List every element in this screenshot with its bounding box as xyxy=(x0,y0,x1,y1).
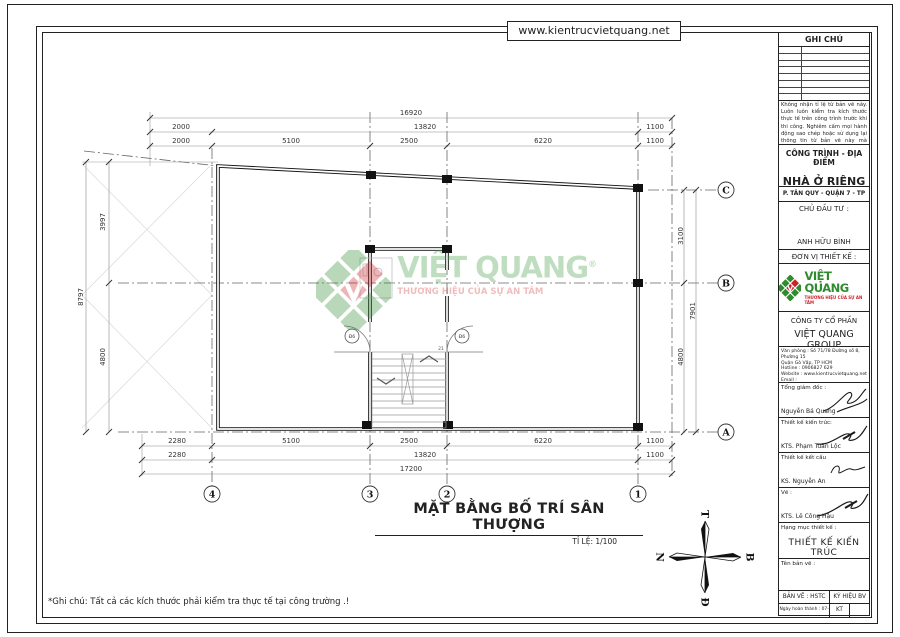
brand-tagline: THƯƠNG HIỆU CỦA SỰ AN TÂM xyxy=(804,295,869,305)
company-line2: VIỆT QUANG GROUP xyxy=(779,329,869,347)
svg-text:7901: 7901 xyxy=(689,302,697,320)
sheet-symbol-label: KÝ HIỆU BV xyxy=(830,591,869,603)
svg-text:N: N xyxy=(654,552,666,562)
category-section: Hạng mục thiết kế : THIẾT KẾ KIẾN TRÚC xyxy=(779,523,869,559)
drawing-sheet: www.kientrucvietquang.net xyxy=(0,0,900,637)
floor-plan-svg: 1692020001382011002000510025006220110022… xyxy=(40,30,780,630)
svg-text:Đ: Đ xyxy=(699,597,711,606)
svg-text:5100: 5100 xyxy=(282,137,300,145)
svg-text:4800: 4800 xyxy=(99,348,107,366)
svg-text:1100: 1100 xyxy=(646,123,664,131)
svg-text:3997: 3997 xyxy=(99,213,107,231)
sheet-type-row: BẢN VẼ : HSTC KÝ HIỆU BV xyxy=(779,591,869,604)
category-label: Hạng mục thiết kế : xyxy=(779,523,869,531)
svg-text:1100: 1100 xyxy=(646,137,664,145)
investor-label: CHỦ ĐẦU TƯ : xyxy=(779,202,869,213)
svg-text:1100: 1100 xyxy=(646,437,664,445)
svg-text:4: 4 xyxy=(209,490,216,501)
svg-text:T: T xyxy=(699,510,711,518)
vietquang-diamond-icon xyxy=(779,275,801,301)
walls xyxy=(218,166,638,429)
note-line: Không nhận tỉ lệ từ bản vẽ này. xyxy=(781,102,867,108)
investor-name: ANH HỮU BÌNH xyxy=(779,238,869,246)
signature-name: KS. Nguyễn An xyxy=(781,478,826,485)
signature-icon xyxy=(825,455,869,481)
sheet-name-section: Tên bản vẽ : xyxy=(779,559,869,591)
signature-director: Tổng giám đốc : Nguyễn Bá Quang xyxy=(779,383,869,418)
compass-icon xyxy=(669,521,741,593)
sheet-date-row: Ngày hoàn thành : 07-2024 KT xyxy=(779,604,869,617)
svg-text:5100: 5100 xyxy=(282,437,300,445)
svg-text:B: B xyxy=(722,279,730,290)
contact-line: Văn phòng : Số 71/78 Đường số 8, Phường … xyxy=(781,349,867,361)
investor-section: CHỦ ĐẦU TƯ : ANH HỮU BÌNH xyxy=(779,202,869,250)
project-name: NHÀ Ở RIÊNG LẺ xyxy=(779,175,869,187)
disclaimer-notes: Không nhận tỉ lệ từ bản vẽ này. Luôn luô… xyxy=(779,101,869,145)
project-label: CÔNG TRÌNH - ĐỊA ĐIỂM xyxy=(779,149,869,167)
signature-architect: Thiết kế kiến trúc: KTS. Phạm Tuấn Lộc xyxy=(779,418,869,453)
svg-text:C: C xyxy=(722,186,730,197)
svg-text:B: B xyxy=(744,553,756,562)
category-value: THIẾT KẾ KIẾN TRÚC xyxy=(779,538,869,558)
company-logo: VIỆT QUANG THƯƠNG HIỆU CỦA SỰ AN TÂM xyxy=(779,264,869,312)
svg-text:2500: 2500 xyxy=(400,137,418,145)
dimension-lines xyxy=(82,112,696,476)
project-section: CÔNG TRÌNH - ĐỊA ĐIỂM NHÀ Ở RIÊNG LẺ xyxy=(779,145,869,187)
staircase xyxy=(372,352,446,428)
svg-text:1: 1 xyxy=(635,490,642,501)
svg-text:2000: 2000 xyxy=(172,137,190,145)
notes-table xyxy=(779,47,869,101)
svg-text:2500: 2500 xyxy=(400,437,418,445)
project-address: P. TÂN QUY - QUẬN 7 - TP HCM xyxy=(779,187,869,202)
signature-engineer: Thiết kế kết cấu KS. Nguyễn An xyxy=(779,453,869,488)
landing-fixture xyxy=(360,258,392,298)
svg-text:2: 2 xyxy=(444,490,451,501)
company-name: CÔNG TY CỔ PHẦN VIỆT QUANG GROUP xyxy=(779,312,869,347)
notes-header: GHI CHÚ xyxy=(779,33,869,47)
completion-date: Ngày hoàn thành : 07-2024 xyxy=(779,604,830,617)
columns xyxy=(362,171,643,431)
svg-text:3: 3 xyxy=(367,490,374,501)
svg-text:8797: 8797 xyxy=(77,288,85,306)
svg-text:6220: 6220 xyxy=(534,437,552,445)
svg-text:Đ6: Đ6 xyxy=(349,334,356,340)
svg-text:3100: 3100 xyxy=(677,227,685,245)
svg-text:13820: 13820 xyxy=(414,123,436,131)
svg-text:Đ6: Đ6 xyxy=(459,334,466,340)
svg-text:A: A xyxy=(721,428,730,439)
svg-text:1100: 1100 xyxy=(646,451,664,459)
svg-text:17200: 17200 xyxy=(400,465,422,473)
company-line1: CÔNG TY CỔ PHẦN xyxy=(779,317,869,325)
sheet-type: BẢN VẼ : HSTC xyxy=(779,591,830,603)
sheet-code-empty xyxy=(850,604,869,617)
signature-drafter: Vẽ : KTS. Lê Công Hậu xyxy=(779,488,869,523)
svg-text:13820: 13820 xyxy=(414,451,436,459)
svg-text:4800: 4800 xyxy=(677,348,685,366)
designer-label: ĐƠN VỊ THIẾT KẾ : xyxy=(779,250,869,264)
svg-text:21: 21 xyxy=(438,346,444,352)
void-hatch xyxy=(82,164,212,428)
sheet-code: KT xyxy=(830,604,849,617)
svg-text:2280: 2280 xyxy=(168,437,186,445)
svg-text:2280: 2280 xyxy=(168,451,186,459)
signature-name: KTS. Lê Công Hậu xyxy=(781,513,834,520)
signature-name: KTS. Phạm Tuấn Lộc xyxy=(781,443,841,450)
brand-name: VIỆT QUANG xyxy=(804,270,869,294)
svg-text:16920: 16920 xyxy=(400,109,422,117)
website-url: www.kientrucvietquang.net xyxy=(507,21,681,41)
company-contact: Văn phòng : Số 71/78 Đường số 8, Phường … xyxy=(779,347,869,383)
svg-text:6220: 6220 xyxy=(534,137,552,145)
title-block: GHI CHÚ Không nhận tỉ lệ từ bản vẽ này. … xyxy=(778,32,870,616)
svg-text:2000: 2000 xyxy=(172,123,190,131)
signature-name: Nguyễn Bá Quang xyxy=(781,408,836,415)
